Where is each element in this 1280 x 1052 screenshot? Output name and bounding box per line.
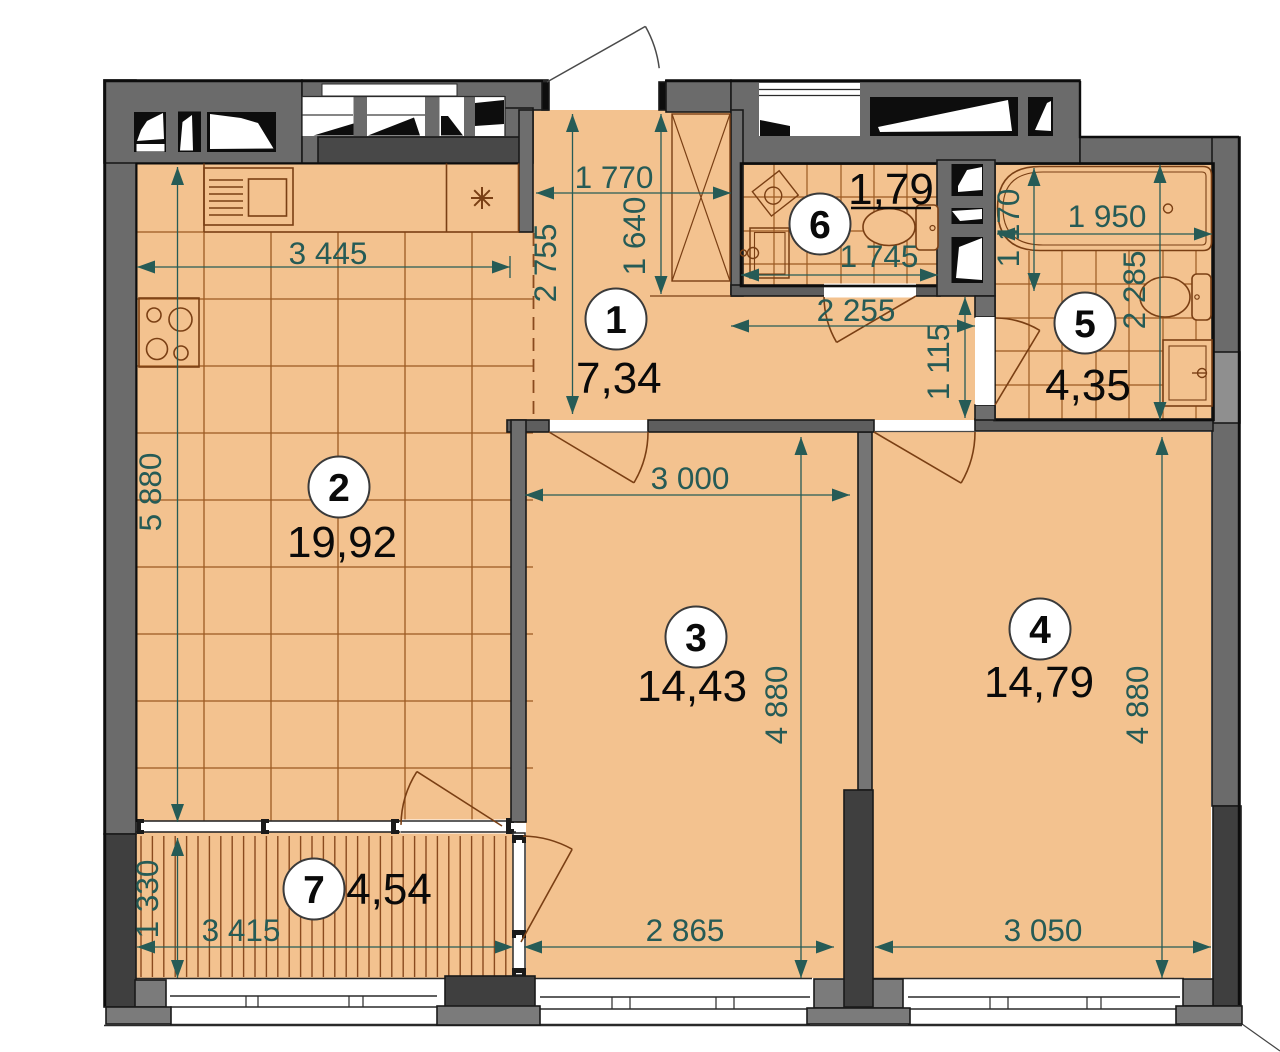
svg-text:3 415: 3 415 (202, 912, 281, 948)
svg-text:1 640: 1 640 (616, 197, 652, 276)
svg-text:3: 3 (685, 617, 707, 660)
svg-text:14,43: 14,43 (637, 662, 747, 711)
svg-text:1 170: 1 170 (990, 189, 1026, 268)
svg-text:6: 6 (809, 204, 831, 247)
svg-text:2 285: 2 285 (1116, 251, 1152, 330)
svg-text:5: 5 (1074, 303, 1096, 346)
svg-text:1 770: 1 770 (575, 159, 654, 195)
svg-text:7: 7 (303, 869, 325, 912)
svg-text:1,79: 1,79 (848, 165, 934, 214)
svg-text:4 880: 4 880 (758, 666, 794, 745)
svg-text:14,79: 14,79 (984, 658, 1094, 707)
svg-text:5 880: 5 880 (132, 453, 168, 532)
svg-text:7,34: 7,34 (576, 354, 662, 403)
svg-text:2: 2 (328, 467, 350, 510)
svg-text:3 000: 3 000 (651, 460, 730, 496)
svg-text:4 880: 4 880 (1119, 666, 1155, 745)
svg-text:3 445: 3 445 (289, 235, 368, 271)
svg-text:2 865: 2 865 (646, 912, 725, 948)
svg-text:19,92: 19,92 (287, 518, 397, 567)
svg-text:1 330: 1 330 (129, 860, 165, 939)
svg-text:1 115: 1 115 (920, 324, 956, 401)
svg-text:1: 1 (605, 299, 627, 342)
svg-text:2 755: 2 755 (527, 224, 563, 303)
svg-text:4,54: 4,54 (346, 865, 432, 914)
svg-text:4,35: 4,35 (1045, 361, 1131, 410)
svg-text:1 745: 1 745 (840, 238, 919, 274)
svg-text:4: 4 (1029, 609, 1051, 652)
svg-text:1 950: 1 950 (1068, 198, 1147, 234)
svg-text:2 255: 2 255 (817, 292, 896, 328)
svg-text:3 050: 3 050 (1004, 912, 1083, 948)
